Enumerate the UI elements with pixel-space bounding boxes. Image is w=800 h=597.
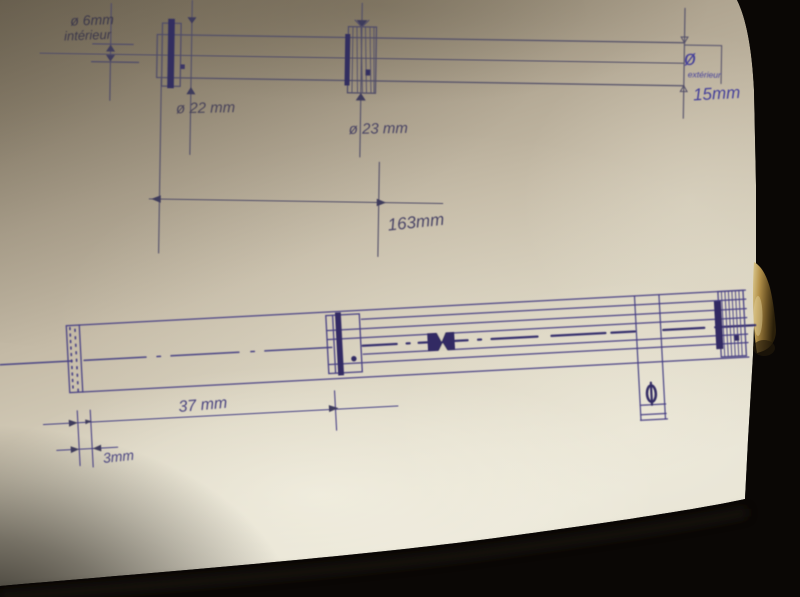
svg-text:ø 23 mm: ø 23 mm (349, 120, 409, 138)
svg-text:extérieur: extérieur (688, 69, 722, 80)
svg-text:3mm: 3mm (102, 447, 135, 466)
svg-text:15mm: 15mm (693, 83, 741, 105)
svg-text:ø: ø (683, 47, 697, 71)
svg-text:ø 22 mm: ø 22 mm (176, 99, 236, 117)
svg-text:intérieur: intérieur (64, 27, 112, 44)
